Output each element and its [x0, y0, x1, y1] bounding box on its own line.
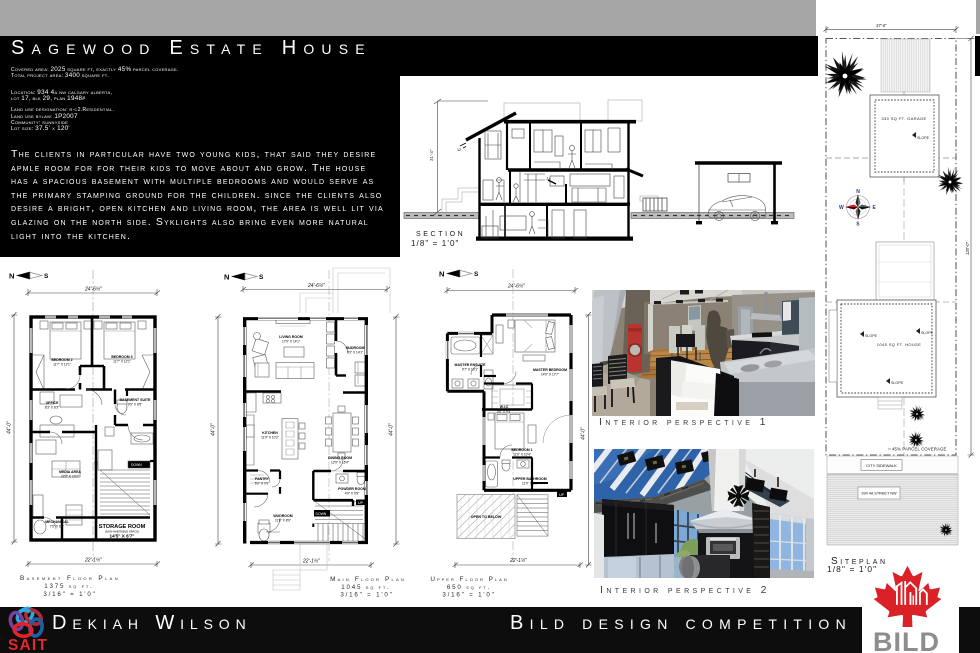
svg-text:9'5" X 8'5": 9'5" X 8'5" — [128, 403, 142, 407]
svg-text:14'5" X 6'7": 14'5" X 6'7" — [110, 534, 135, 539]
svg-text:N: N — [9, 272, 14, 281]
svg-text:Basement Floor Plan: Basement Floor Plan — [20, 575, 120, 582]
svg-text:PANTRY: PANTRY — [255, 477, 270, 481]
svg-text:N: N — [439, 270, 444, 279]
svg-text:7'5" X 6'7": 7'5" X 6'7" — [50, 525, 64, 529]
svg-text:44'-0": 44'-0" — [7, 421, 13, 434]
svg-text:POWDER ROOM: POWDER ROOM — [338, 487, 366, 491]
svg-text:11'6" X 8'9": 11'6" X 8'9" — [275, 519, 291, 523]
svg-text:14'0" X 17'7": 14'0" X 17'7" — [541, 373, 559, 377]
svg-text:MUDROOM: MUDROOM — [346, 346, 365, 350]
svg-text:S: S — [856, 222, 860, 228]
svg-text:650 sq ft.: 650 sq ft. — [447, 584, 491, 591]
svg-text:11'0" X 10'4": 11'0" X 10'4" — [513, 453, 531, 457]
svg-text:3/16" = 1'0": 3/16" = 1'0" — [340, 592, 393, 599]
svg-text:Main Floor Plan: Main Floor Plan — [330, 576, 406, 583]
svg-text:22'-1½": 22'-1½" — [509, 557, 527, 564]
svg-text:W: W — [839, 205, 844, 211]
svg-text:section: section — [416, 228, 465, 239]
svg-text:BILD: BILD — [873, 627, 940, 653]
svg-text:DOWN: DOWN — [131, 463, 142, 467]
svg-text:9'3" X 14'1": 9'3" X 14'1" — [347, 351, 363, 355]
svg-text:SAIT: SAIT — [8, 637, 48, 652]
svg-text:1045 sq ft.: 1045 sq ft. — [341, 584, 390, 591]
svg-text:6'2" X 9'9": 6'2" X 9'9" — [255, 482, 269, 486]
svg-text:BEDROOM 1: BEDROOM 1 — [511, 448, 532, 452]
svg-text:3/16" = 1'0": 3/16" = 1'0" — [442, 592, 495, 599]
svg-text:SLOPE: SLOPE — [891, 381, 904, 385]
svg-text:DOWN: DOWN — [316, 512, 327, 516]
svg-text:330 SQ FT. GARAGE: 330 SQ FT. GARAGE — [881, 116, 926, 121]
svg-text:8'3" X 8'3": 8'3" X 8'3" — [45, 406, 59, 410]
svg-text:W.I.C: W.I.C — [500, 405, 509, 409]
svg-text:31'-4": 31'-4" — [429, 149, 434, 161]
svg-text:44'-0": 44'-0" — [211, 423, 217, 436]
svg-text:MASTER ENSUITE: MASTER ENSUITE — [455, 363, 487, 367]
svg-text:SLOPE: SLOPE — [865, 334, 878, 338]
svg-text:9'6" X 4'9": 9'6" X 4'9" — [497, 410, 511, 414]
svg-text:UP: UP — [559, 493, 565, 497]
svg-text:KITCHEN: KITCHEN — [262, 431, 278, 435]
svg-text:1375 sq ft.: 1375 sq ft. — [44, 583, 93, 590]
svg-text:11'0" X 5'0": 11'0" X 5'0" — [522, 482, 538, 486]
svg-text:11'7" X 12'1": 11'7" X 12'1" — [53, 363, 71, 367]
svg-text:MECHANICAL: MECHANICAL — [45, 520, 69, 524]
svg-text:SLOPE: SLOPE — [921, 331, 934, 335]
svg-text:WUDROOM: WUDROOM — [273, 514, 292, 518]
svg-text:E: E — [873, 205, 877, 211]
svg-text:S: S — [474, 271, 479, 278]
svg-text:BEDROOM 3: BEDROOM 3 — [111, 355, 132, 359]
svg-text:BASEMENT SUITE: BASEMENT SUITE — [120, 398, 152, 402]
svg-text:24'-6½": 24'-6½" — [507, 283, 525, 290]
svg-text:44'-0": 44'-0" — [389, 423, 395, 436]
svg-text:MASTER BEDROOM: MASTER BEDROOM — [533, 368, 567, 372]
svg-text:S: S — [44, 273, 49, 280]
svg-text:9'7" X 10'1": 9'7" X 10'1" — [462, 368, 478, 372]
svg-text:4'9" X 9'9": 4'9" X 9'9" — [345, 492, 359, 496]
svg-text:1/8" = 1'0": 1/8" = 1'0" — [411, 239, 459, 248]
svg-text:22'2" X 10'2": 22'2" X 10'2" — [61, 475, 79, 479]
svg-text:OFFICE: OFFICE — [46, 401, 59, 405]
svg-text:OPEN TO BELOW: OPEN TO BELOW — [471, 515, 502, 519]
svg-text:44'-0": 44'-0" — [581, 427, 587, 440]
svg-text:UP: UP — [358, 501, 364, 505]
svg-text:1045 SQ FT. HOUSE: 1045 SQ FT. HOUSE — [877, 342, 922, 347]
svg-text:22'-1½": 22'-1½" — [302, 558, 320, 565]
svg-text:37'-6": 37'-6" — [876, 23, 887, 28]
svg-text:934 4A STREET NW: 934 4A STREET NW — [861, 492, 897, 496]
svg-text:BEDROOM 2: BEDROOM 2 — [51, 358, 72, 362]
svg-text:Upper Floor Plan: Upper Floor Plan — [430, 576, 508, 583]
svg-text:17'6" X 14'1": 17'6" X 14'1" — [282, 340, 300, 344]
svg-text:UPPER BATHROOM: UPPER BATHROOM — [513, 477, 546, 481]
svg-text:45% PARCEL COVERAGE: 45% PARCEL COVERAGE — [892, 447, 947, 452]
svg-text:3/16" = 1'0": 3/16" = 1'0" — [43, 591, 96, 598]
svg-text:N: N — [856, 189, 860, 195]
svg-text:MEDIA AREA: MEDIA AREA — [59, 470, 81, 474]
svg-text:S: S — [259, 274, 264, 281]
svg-text:DINING ROOM: DINING ROOM — [328, 456, 352, 460]
svg-text:12'9" X 15'4": 12'9" X 15'4" — [331, 461, 349, 465]
svg-text:SLOPE: SLOPE — [917, 136, 930, 140]
svg-text:24'-6½": 24'-6½" — [307, 282, 325, 289]
svg-text:LIVING ROOM: LIVING ROOM — [279, 335, 303, 339]
svg-text:CITY SIDEWALK: CITY SIDEWALK — [866, 463, 897, 468]
svg-text:120'-0": 120'-0" — [965, 241, 970, 255]
svg-text:12: 12 — [457, 148, 461, 152]
svg-text:11'7" X 12'1": 11'7" X 12'1" — [113, 360, 131, 364]
svg-text:N: N — [224, 273, 229, 282]
svg-text:11'9" X 10'2": 11'9" X 10'2" — [261, 436, 279, 440]
